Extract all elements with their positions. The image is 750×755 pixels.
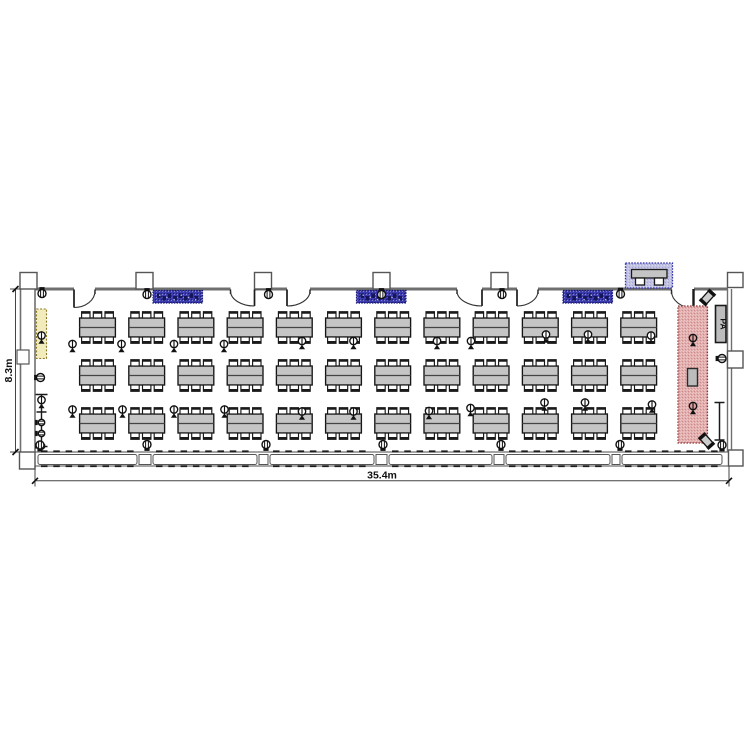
svg-text:8.3m: 8.3m (3, 359, 15, 383)
svg-text:PA: PA (719, 318, 729, 329)
svg-text:35.4m: 35.4m (367, 470, 397, 482)
